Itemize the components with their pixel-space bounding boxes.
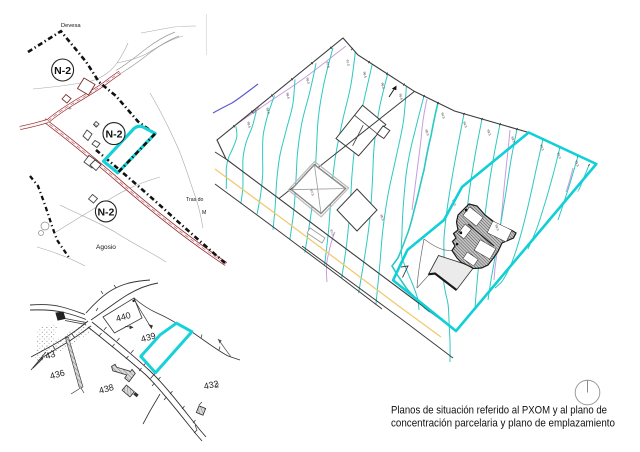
svg-text:Tras do: Tras do [186,197,204,203]
svg-text:M: M [202,210,206,216]
svg-text:concentración parcelaria y pla: concentración parcelaria y plano de empl… [391,418,615,430]
svg-text:436: 436 [49,368,66,382]
svg-text:99.5: 99.5 [246,121,252,128]
svg-text:94.5: 94.5 [440,112,446,119]
svg-text:N-2: N-2 [97,206,114,218]
svg-text:95.0: 95.0 [424,129,430,136]
svg-text:96.0: 96.0 [380,82,386,89]
svg-text:Planos de situación referido a: Planos de situación referido al PXOM y a… [391,405,607,417]
svg-text:N-2: N-2 [54,65,71,77]
svg-text:94.0: 94.0 [462,121,468,128]
svg-text:438: 438 [98,382,115,396]
svg-text:Devesa: Devesa [61,23,81,29]
svg-text:97.0: 97.0 [329,229,335,236]
svg-text:N-2: N-2 [106,129,123,141]
svg-text:97.0: 97.0 [345,59,351,66]
svg-text:42: 42 [92,123,98,129]
svg-text:96.5: 96.5 [362,71,368,78]
svg-text:98.5: 98.5 [285,92,291,99]
svg-text:440: 440 [115,310,132,324]
svg-text:99.0: 99.0 [265,107,271,114]
svg-text:93.5: 93.5 [486,129,492,136]
svg-text:2: 2 [215,383,219,390]
svg-text:95.5: 95.5 [398,93,404,100]
svg-text:98.0: 98.0 [305,77,311,84]
svg-text:Agosio: Agosio [96,244,116,251]
svg-text:97.5: 97.5 [325,61,331,68]
